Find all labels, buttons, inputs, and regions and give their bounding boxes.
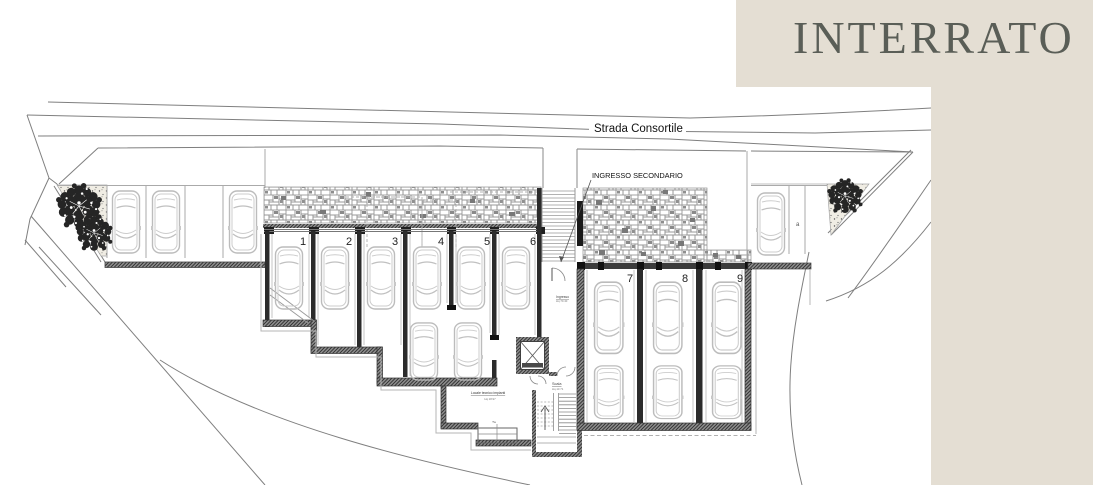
svg-text:Strada Consortile: Strada Consortile [594,123,683,135]
svg-text:a: a [796,222,800,228]
svg-text:Tw: Tw [492,420,497,424]
svg-text:Hq.13.71: Hq.13.71 [552,387,564,391]
svg-text:Hq.70.40: Hq.70.40 [556,299,568,303]
svg-text:2: 2 [346,236,352,248]
svg-text:Hq 18.97: Hq 18.97 [484,397,496,401]
svg-text:9: 9 [737,273,743,285]
svg-text:4: 4 [438,236,444,248]
svg-text:7: 7 [627,273,633,285]
svg-text:INGRESSO SECONDARIO: INGRESSO SECONDARIO [592,171,683,180]
svg-text:5: 5 [484,236,490,248]
svg-text:6: 6 [530,236,536,248]
svg-text:Scala: Scala [552,382,562,386]
svg-text:Locale tecnico impianti: Locale tecnico impianti [471,391,506,395]
svg-text:3: 3 [392,236,398,248]
svg-text:8: 8 [682,273,688,285]
svg-text:1: 1 [300,236,306,248]
